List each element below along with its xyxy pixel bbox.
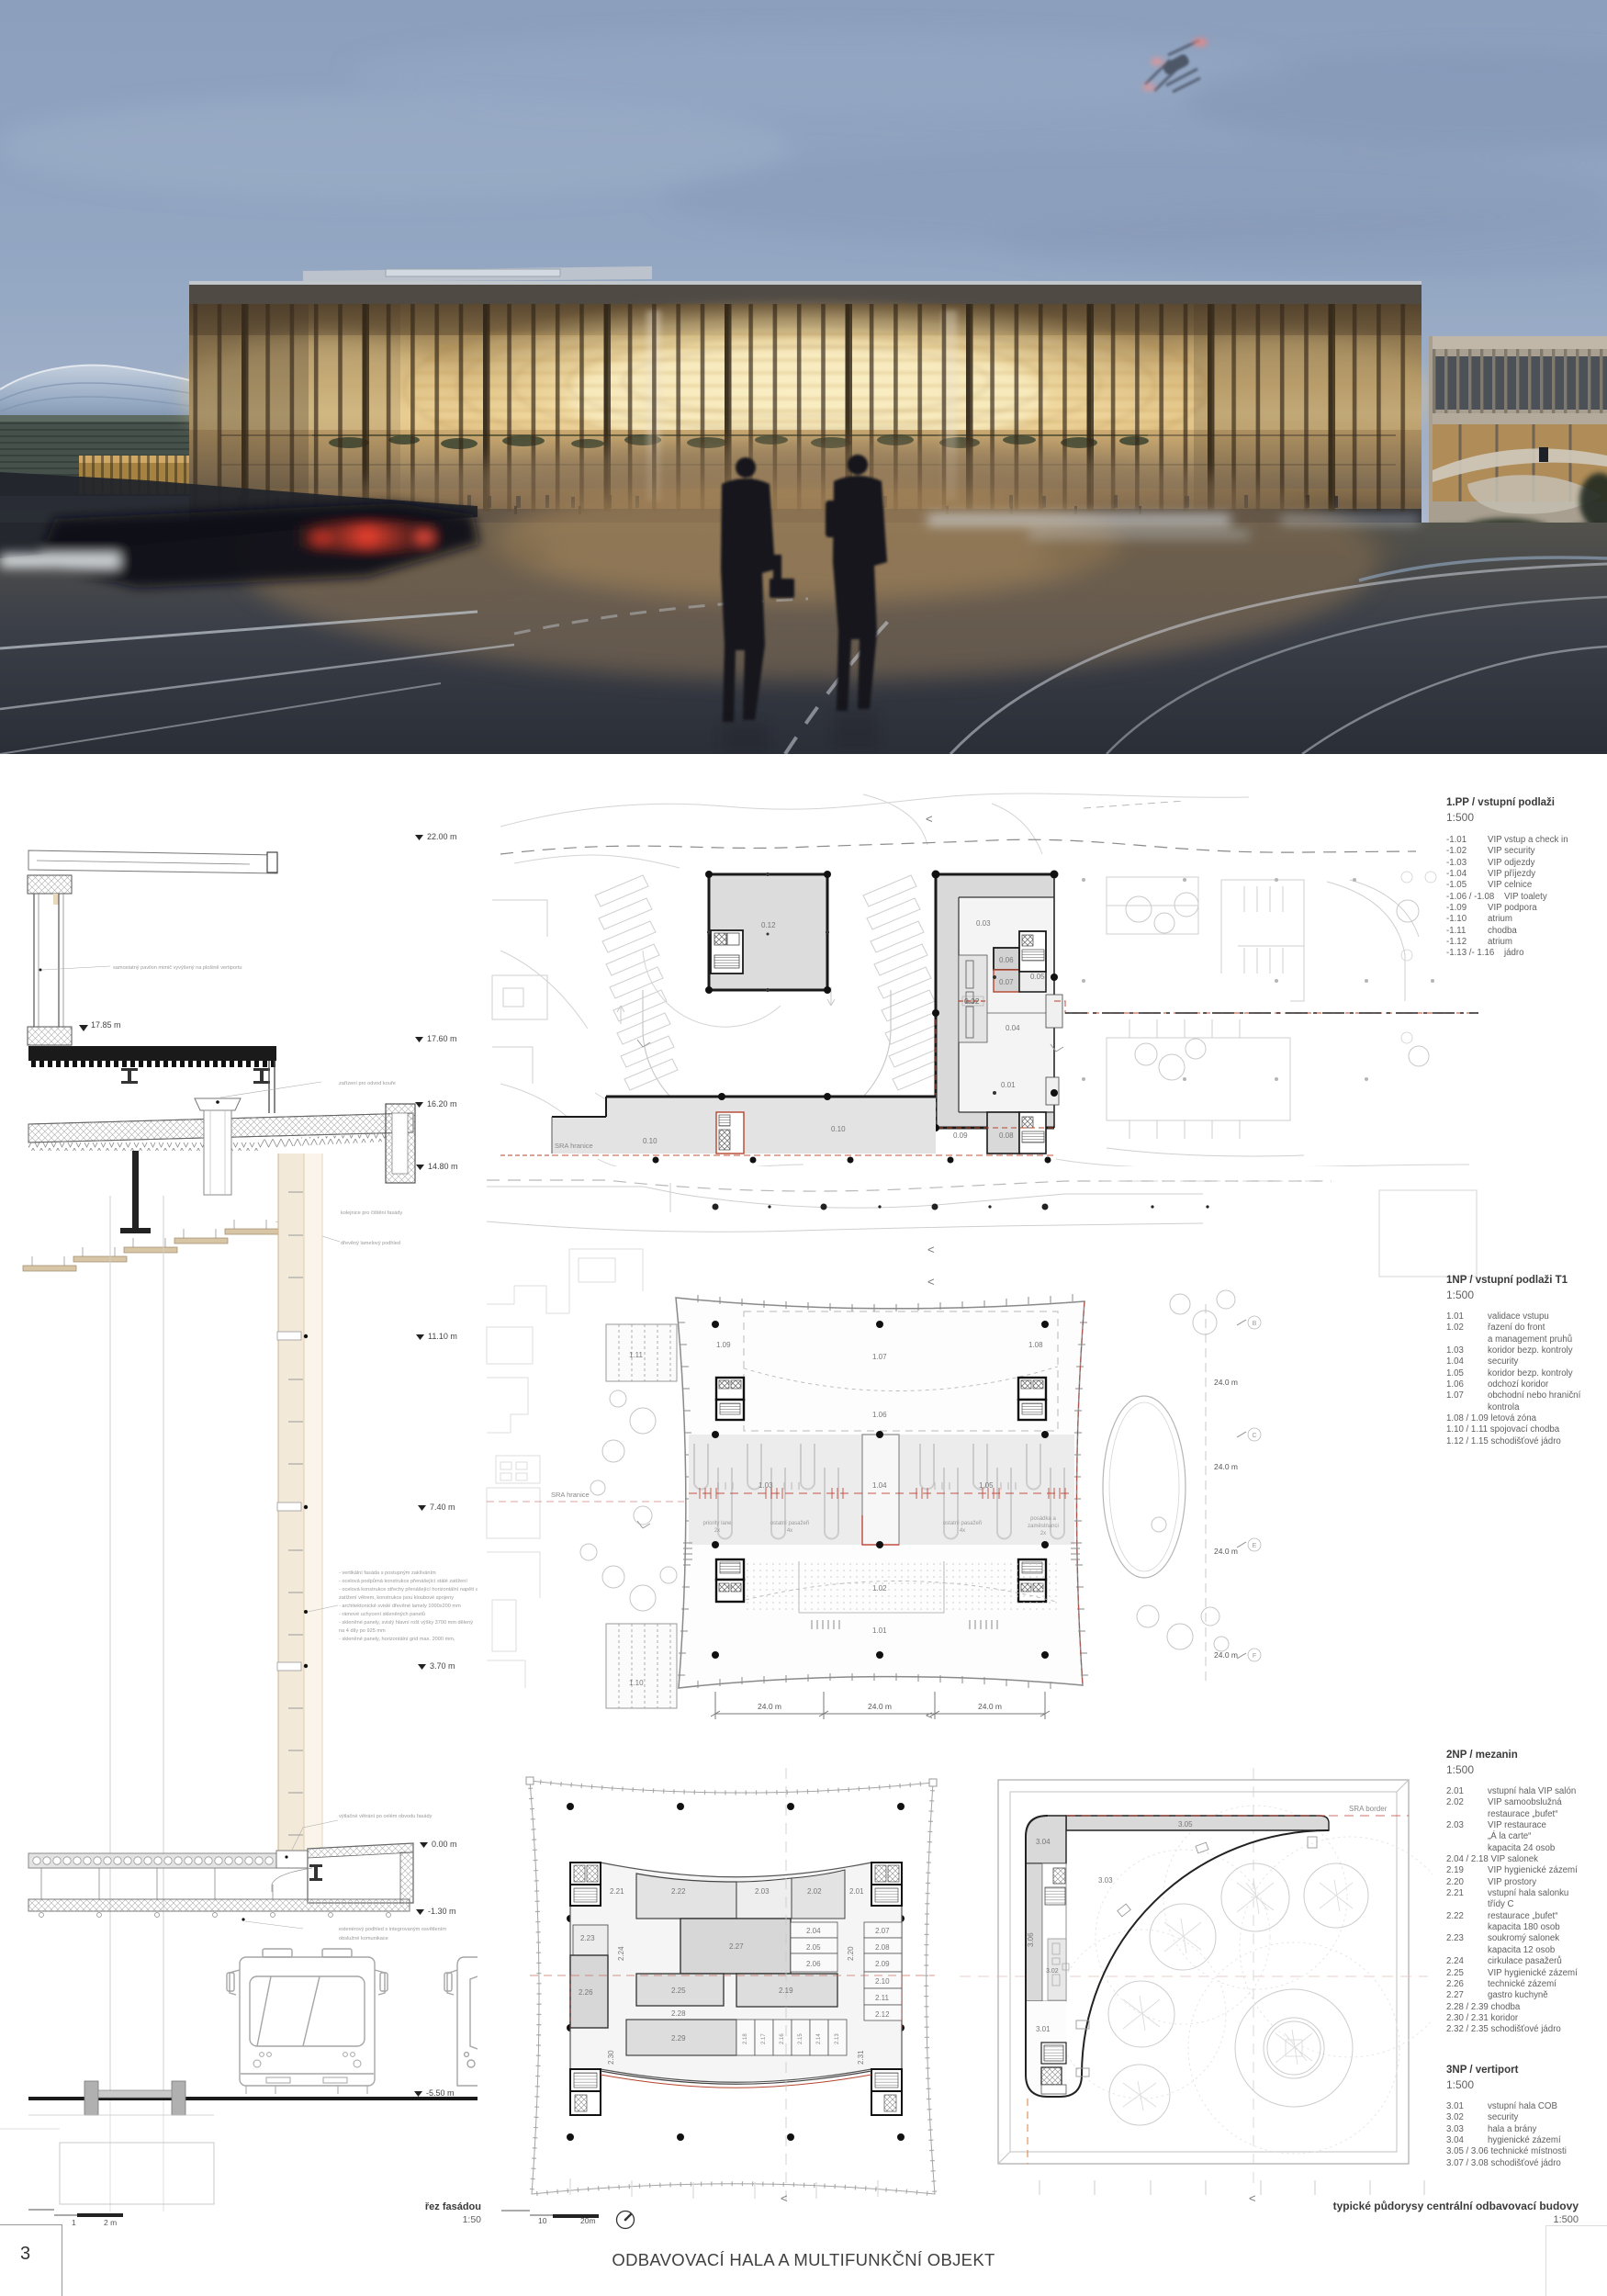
svg-text:priority lane: priority lane <box>702 1521 732 1526</box>
svg-text:SRA hranice: SRA hranice <box>555 1142 593 1150</box>
svg-text:7.40 m: 7.40 m <box>430 1503 455 1512</box>
svg-text:- skleněné panely, svislý hlav: - skleněné panely, svislý hlavní rošt vý… <box>339 1620 473 1626</box>
svg-text:2.13: 2.13 <box>835 2033 840 2044</box>
svg-text:4x: 4x <box>787 1528 792 1534</box>
svg-text:posádka a: posádka a <box>1030 1516 1056 1522</box>
svg-text:24.0 m: 24.0 m <box>1214 1547 1238 1556</box>
svg-text:2x: 2x <box>1040 1531 1046 1536</box>
svg-text:4x: 4x <box>960 1528 965 1534</box>
svg-text:zatížení větrem, konstrukce js: zatížení větrem, konstrukce jsou kloubov… <box>339 1595 454 1601</box>
svg-text:2.28: 2.28 <box>671 2009 686 2018</box>
svg-text:- rámové uchycení skleněných p: - rámové uchycení skleněných panelů <box>339 1611 425 1617</box>
svg-text:zařízení pro odvod kouře: zařízení pro odvod kouře <box>339 1081 396 1086</box>
svg-text:2.12: 2.12 <box>875 2010 890 2019</box>
svg-text:0.07: 0.07 <box>999 978 1014 986</box>
svg-text:0.09: 0.09 <box>953 1131 968 1140</box>
svg-text:2.02: 2.02 <box>807 1887 822 1896</box>
svg-text:<: < <box>927 1275 935 1289</box>
svg-text:0.10: 0.10 <box>831 1125 846 1133</box>
svg-text:E: E <box>1253 1543 1257 1549</box>
svg-text:<: < <box>927 1243 935 1256</box>
svg-text:-1.30 m: -1.30 m <box>428 1907 456 1916</box>
svg-text:2.17: 2.17 <box>761 2033 767 2044</box>
svg-text:11.10 m: 11.10 m <box>428 1332 457 1341</box>
svg-text:3.70 m: 3.70 m <box>430 1661 455 1671</box>
svg-text:- ocelová konstrukce střechy p: - ocelová konstrukce střechy přenášející… <box>339 1587 478 1593</box>
svg-text:- skleněné panely, horizontáln: - skleněné panely, horizontální grid max… <box>339 1637 455 1642</box>
svg-text:2.10: 2.10 <box>875 1977 890 1986</box>
svg-text:na 4 díly po 925 mm: na 4 díly po 925 mm <box>339 1628 386 1634</box>
svg-text:0.08: 0.08 <box>999 1131 1014 1140</box>
svg-text:0.02: 0.02 <box>964 996 980 1006</box>
svg-text:1.08: 1.08 <box>1028 1341 1043 1349</box>
svg-text:výtlačné větrání po celém obvo: výtlačné větrání po celém obvodu fasády <box>339 1814 433 1819</box>
svg-text:20m: 20m <box>580 2216 596 2225</box>
svg-text:2.05: 2.05 <box>806 1943 821 1952</box>
svg-text:1.11: 1.11 <box>629 1351 644 1359</box>
svg-text:0.10: 0.10 <box>643 1137 657 1145</box>
svg-text:SRA border: SRA border <box>1349 1805 1388 1813</box>
svg-text:2.22: 2.22 <box>671 1887 686 1896</box>
svg-text:3.06: 3.06 <box>1027 1932 1035 1947</box>
svg-text:ostatní pasažeři: ostatní pasažeři <box>770 1521 809 1526</box>
svg-text:2 m: 2 m <box>104 2218 117 2227</box>
svg-text:- vertikální fasáda s postupný: - vertikální fasáda s postupným zaklíván… <box>339 1570 436 1576</box>
svg-text:1.04: 1.04 <box>872 1481 887 1490</box>
svg-text:3.04: 3.04 <box>1036 1838 1051 1846</box>
svg-text:2.07: 2.07 <box>875 1927 890 1935</box>
svg-text:2.30: 2.30 <box>607 2050 615 2065</box>
svg-text:2.23: 2.23 <box>580 1934 595 1942</box>
svg-text:3.03: 3.03 <box>1098 1876 1113 1885</box>
svg-text:1.01: 1.01 <box>872 1626 887 1635</box>
svg-text:1.07: 1.07 <box>872 1353 887 1361</box>
svg-text:2.03: 2.03 <box>755 1887 770 1896</box>
svg-text:3.02: 3.02 <box>1046 1968 1059 1975</box>
svg-text:17.60 m: 17.60 m <box>427 1034 457 1043</box>
svg-text:2.01: 2.01 <box>849 1887 864 1896</box>
svg-text:F: F <box>1253 1653 1256 1660</box>
svg-text:1.06: 1.06 <box>872 1411 887 1419</box>
svg-text:2.27: 2.27 <box>729 1942 744 1951</box>
svg-text:<: < <box>926 812 933 826</box>
svg-text:2.25: 2.25 <box>671 1986 686 1995</box>
svg-text:2.21: 2.21 <box>610 1887 624 1896</box>
svg-text:<: < <box>926 1708 933 1722</box>
svg-text:24.0 m: 24.0 m <box>1214 1650 1238 1660</box>
svg-text:0.05: 0.05 <box>1030 973 1045 981</box>
svg-text:2.15: 2.15 <box>798 2033 803 2044</box>
svg-text:1.03: 1.03 <box>759 1481 773 1490</box>
svg-text:- ocelová podpůrná konstrukce: - ocelová podpůrná konstrukce přenášejíc… <box>339 1578 467 1584</box>
svg-text:10: 10 <box>538 2216 547 2225</box>
svg-text:0.03: 0.03 <box>976 919 991 928</box>
svg-text:kolejnice pro čištění fasády: kolejnice pro čištění fasády <box>341 1210 402 1216</box>
svg-text:2.31: 2.31 <box>857 2050 865 2065</box>
svg-text:B: B <box>1253 1321 1257 1327</box>
svg-text:2.06: 2.06 <box>806 1960 821 1968</box>
svg-text:<: < <box>781 2195 788 2205</box>
svg-text:2.08: 2.08 <box>875 1943 890 1952</box>
svg-text:2.09: 2.09 <box>875 1960 890 1968</box>
svg-text:2.18: 2.18 <box>743 2033 748 2044</box>
svg-text:2.04: 2.04 <box>806 1927 821 1935</box>
svg-text:1.05: 1.05 <box>979 1481 994 1490</box>
svg-text:24.0 m: 24.0 m <box>868 1702 892 1711</box>
svg-text:14.80 m: 14.80 m <box>428 1162 458 1171</box>
svg-text:dřevěný lamelový podhled: dřevěný lamelový podhled <box>341 1241 400 1246</box>
svg-text:ostatní pasažeři: ostatní pasažeři <box>943 1521 982 1526</box>
svg-text:1.10: 1.10 <box>629 1679 644 1687</box>
svg-text:exteriérový podhled s integrov: exteriérový podhled s integrovaným osvět… <box>339 1927 446 1932</box>
svg-text:2.20: 2.20 <box>847 1946 855 1961</box>
svg-text:1: 1 <box>72 2218 76 2227</box>
svg-text:2x: 2x <box>714 1528 720 1534</box>
svg-text:0.06: 0.06 <box>999 956 1014 964</box>
svg-text:SRA hranice: SRA hranice <box>551 1491 590 1499</box>
svg-text:0.12: 0.12 <box>761 921 776 929</box>
svg-text:3.01: 3.01 <box>1036 2025 1051 2033</box>
svg-text:0.01: 0.01 <box>1001 1081 1016 1089</box>
svg-text:22.00 m: 22.00 m <box>427 832 457 841</box>
svg-text:samostatný pavilon mimič vyvýš: samostatný pavilon mimič vyvýšený na plo… <box>113 965 242 971</box>
svg-text:obslužné komunikace: obslužné komunikace <box>339 1936 388 1941</box>
svg-text:1.02: 1.02 <box>872 1584 887 1593</box>
svg-text:2.29: 2.29 <box>671 2034 686 2043</box>
svg-text:zaměstnanci: zaměstnanci <box>1028 1524 1059 1529</box>
svg-text:2.26: 2.26 <box>579 1988 593 1997</box>
svg-text:24.0 m: 24.0 m <box>1214 1462 1238 1471</box>
svg-text:1.09: 1.09 <box>716 1341 731 1349</box>
svg-text:24.0 m: 24.0 m <box>1214 1378 1238 1387</box>
svg-text:17.85 m: 17.85 m <box>91 1020 121 1030</box>
svg-text:0.04: 0.04 <box>1006 1024 1020 1032</box>
svg-text:2.16: 2.16 <box>780 2033 785 2044</box>
svg-text:2.14: 2.14 <box>816 2033 822 2044</box>
svg-text:2.24: 2.24 <box>617 1946 625 1961</box>
svg-text:- architektonické svislé dřevě: - architektonické svislé dřevěné lamely … <box>339 1604 461 1609</box>
svg-text:2.19: 2.19 <box>779 1986 793 1995</box>
svg-text:3.05: 3.05 <box>1178 1820 1193 1829</box>
svg-text:-5.50 m: -5.50 m <box>426 2088 455 2098</box>
svg-text:C: C <box>1252 1433 1256 1439</box>
svg-text:2.11: 2.11 <box>875 1994 890 2002</box>
svg-text:16.20 m: 16.20 m <box>427 1099 457 1109</box>
svg-text:24.0 m: 24.0 m <box>978 1702 1002 1711</box>
svg-text:0.00 m: 0.00 m <box>432 1840 457 1849</box>
svg-text:24.0 m: 24.0 m <box>758 1702 781 1711</box>
